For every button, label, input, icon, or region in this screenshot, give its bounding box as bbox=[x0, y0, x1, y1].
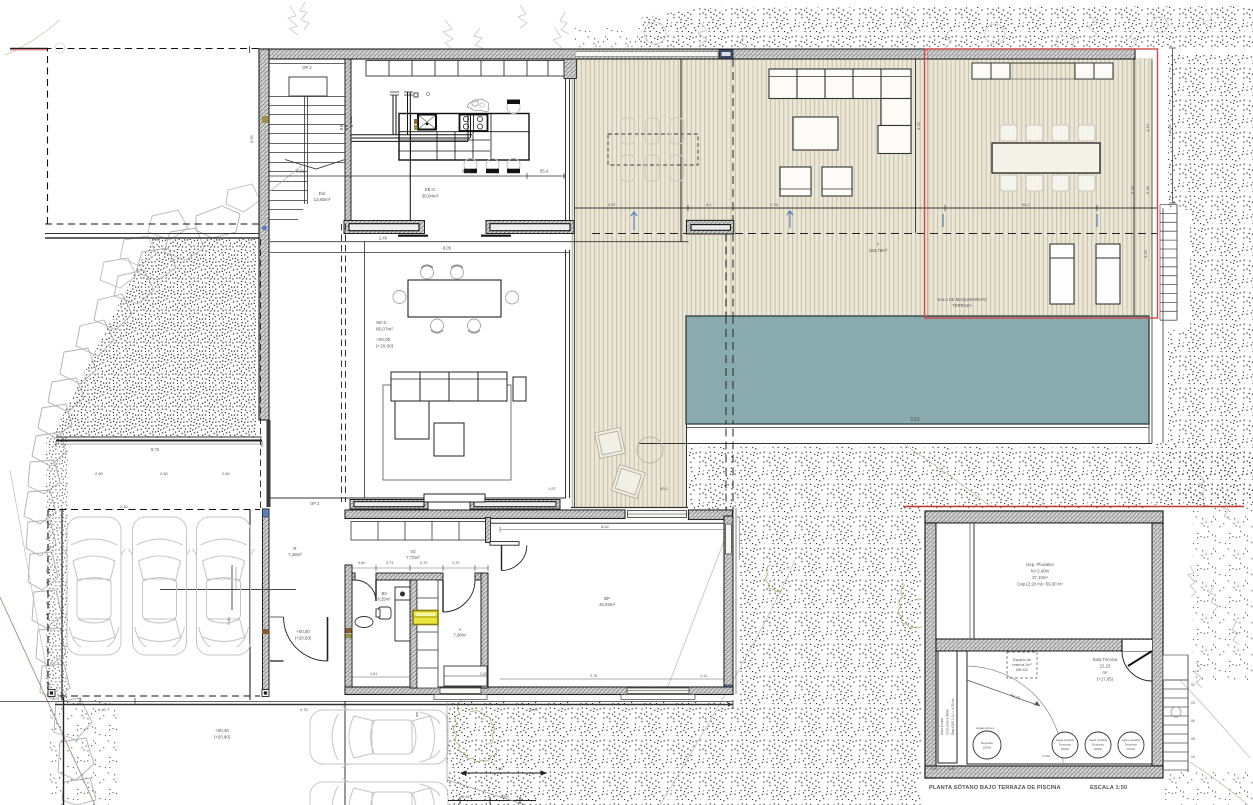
svg-text:2,76: 2,76 bbox=[770, 202, 779, 207]
svg-text:Depósito: Depósito bbox=[981, 741, 993, 745]
svg-text:9,72: 9,72 bbox=[151, 447, 160, 452]
svg-text:0,80: 0,80 bbox=[930, 767, 937, 771]
svg-text:6,25m²: 6,25m² bbox=[377, 597, 391, 602]
svg-text:2,60: 2,60 bbox=[222, 471, 231, 476]
svg-text:(+20,50): (+20,50) bbox=[295, 636, 312, 641]
svg-text:2,40: 2,40 bbox=[226, 616, 231, 625]
svg-text:0,97: 0,97 bbox=[608, 202, 617, 207]
svg-text:65,4: 65,4 bbox=[540, 169, 549, 174]
svg-text:Depósito: Depósito bbox=[1059, 743, 1071, 747]
svg-text:0,36: 0,36 bbox=[1145, 185, 1150, 194]
svg-text:Depósito: Depósito bbox=[1092, 743, 1104, 747]
svg-text:(+17,65): (+17,65) bbox=[1097, 677, 1114, 682]
svg-text:02: 02 bbox=[1191, 683, 1195, 687]
svg-text:2,40: 2,40 bbox=[379, 236, 388, 241]
svg-text:5,06: 5,06 bbox=[1167, 123, 1172, 132]
svg-text:4,26: 4,26 bbox=[1143, 249, 1148, 258]
svg-text:1000L: 1000L bbox=[983, 746, 992, 750]
svg-text:SE-C: SE-C bbox=[376, 320, 388, 325]
svg-text:PLANTA SÓTANO BAJO TERRAZA DE: PLANTA SÓTANO BAJO TERRAZA DE PISCINA bbox=[929, 783, 1061, 791]
svg-text:+00,00: +00,00 bbox=[376, 337, 391, 342]
svg-text:2,75: 2,75 bbox=[590, 674, 597, 678]
svg-text:Dis: Dis bbox=[319, 191, 326, 196]
svg-text:(+20,00): (+20,00) bbox=[376, 344, 394, 349]
svg-text:4,75: 4,75 bbox=[300, 707, 309, 712]
svg-text:10: 10 bbox=[1191, 755, 1195, 759]
svg-text:7,98m²: 7,98m² bbox=[453, 633, 467, 638]
svg-text:Cap.(2,20 m)= 59,30 m³: Cap.(2,20 m)= 59,30 m³ bbox=[1017, 582, 1063, 587]
svg-text:2,95: 2,95 bbox=[530, 707, 539, 712]
svg-text:Dep. Pluviales: Dep. Pluviales bbox=[1026, 562, 1053, 567]
svg-text:reserva 1m³: reserva 1m³ bbox=[1012, 663, 1032, 667]
svg-text:1,97: 1,97 bbox=[548, 486, 557, 491]
svg-text:B3: B3 bbox=[381, 591, 387, 596]
svg-text:22,23: 22,23 bbox=[1100, 664, 1111, 669]
svg-text:2,45: 2,45 bbox=[480, 672, 487, 676]
svg-text:3,25: 3,25 bbox=[916, 121, 921, 130]
svg-text:0,70: 0,70 bbox=[420, 561, 427, 565]
svg-text:7,28m²: 7,28m² bbox=[288, 552, 302, 557]
svg-text:1,11: 1,11 bbox=[700, 674, 707, 678]
svg-text:2,60: 2,60 bbox=[95, 471, 104, 476]
svg-text:Depósito: Depósito bbox=[1125, 743, 1137, 747]
svg-text:+00,00: +00,00 bbox=[296, 629, 310, 634]
svg-text:8,1: 8,1 bbox=[706, 202, 712, 207]
svg-text:9,61: 9,61 bbox=[910, 417, 920, 423]
svg-text:SE-C: SE-C bbox=[425, 187, 437, 192]
svg-text:4,13: 4,13 bbox=[1145, 123, 1150, 132]
svg-text:h=94: h=94 bbox=[1043, 754, 1050, 758]
svg-text:+00,40: +00,40 bbox=[215, 728, 229, 733]
svg-text:ESCALA 1:50: ESCALA 1:50 bbox=[1090, 785, 1127, 791]
svg-text:6,40: 6,40 bbox=[98, 707, 107, 712]
svg-text:13,65m²: 13,65m² bbox=[314, 197, 331, 202]
svg-text:85,07m²: 85,07m² bbox=[376, 327, 393, 332]
svg-text:A: A bbox=[459, 627, 462, 632]
svg-text:V2: V2 bbox=[410, 549, 416, 554]
svg-text:(+20,90): (+20,90) bbox=[214, 735, 231, 740]
svg-text:183,78m²: 183,78m² bbox=[869, 248, 888, 253]
svg-text:2,40: 2,40 bbox=[120, 504, 129, 509]
svg-text:65,5: 65,5 bbox=[462, 169, 471, 174]
svg-text:DB=I32: DB=I32 bbox=[1016, 668, 1028, 672]
svg-text:OP 2: OP 2 bbox=[302, 65, 312, 70]
svg-text:Dep.GLP 1,2 l = 4,35 m³: Dep.GLP 1,2 l = 4,35 m³ bbox=[951, 698, 955, 735]
svg-text:37,10m²: 37,10m² bbox=[1032, 575, 1048, 580]
svg-text:Sala Comb.: Sala Comb. bbox=[940, 717, 944, 735]
svg-text:T: T bbox=[877, 242, 880, 247]
svg-text:8,52: 8,52 bbox=[601, 524, 610, 529]
svg-text:BP: BP bbox=[604, 596, 610, 601]
svg-text:04: 04 bbox=[1191, 701, 1195, 705]
svg-text:96,2: 96,2 bbox=[1022, 202, 1031, 207]
svg-text:h)=2,40m: h)=2,40m bbox=[1031, 569, 1050, 574]
svg-text:R: R bbox=[293, 546, 296, 551]
svg-text:1000L: 1000L bbox=[1127, 747, 1136, 751]
svg-text:SALA DE MAQUINARIA/O: SALA DE MAQUINARIA/O bbox=[937, 297, 987, 302]
svg-text:7,73m²: 7,73m² bbox=[406, 555, 420, 560]
svg-text:0,41: 0,41 bbox=[462, 794, 471, 799]
svg-text:8,05: 8,05 bbox=[443, 246, 452, 251]
svg-text:TERRAZA: TERRAZA bbox=[952, 303, 972, 308]
svg-text:Aguas grises: Aguas grises bbox=[976, 726, 994, 730]
svg-text:7,50: 7,50 bbox=[495, 766, 504, 771]
svg-text:1000L: 1000L bbox=[1094, 747, 1103, 751]
svg-text:0,80: 0,80 bbox=[948, 767, 955, 771]
svg-text:0,36: 0,36 bbox=[1130, 185, 1135, 194]
svg-text:Agua potable: Agua potable bbox=[1089, 738, 1108, 742]
svg-text:45,92m²: 45,92m² bbox=[599, 602, 616, 607]
svg-text:OP 2: OP 2 bbox=[310, 501, 320, 506]
svg-text:1,70: 1,70 bbox=[452, 561, 459, 565]
svg-text:Espacio de: Espacio de bbox=[1013, 658, 1031, 662]
svg-text:h)=2,20m 3,96m²: h)=2,20m 3,96m² bbox=[946, 708, 950, 735]
svg-text:1000L: 1000L bbox=[1061, 747, 1070, 751]
svg-text:0,91: 0,91 bbox=[296, 169, 305, 174]
svg-text:06: 06 bbox=[1191, 719, 1195, 723]
svg-text:30,84m²: 30,84m² bbox=[422, 194, 439, 199]
svg-text:90,2: 90,2 bbox=[660, 486, 669, 491]
svg-text:0,60: 0,60 bbox=[358, 561, 365, 565]
svg-text:1,61: 1,61 bbox=[370, 672, 377, 676]
svg-text:0,73: 0,73 bbox=[386, 561, 393, 565]
svg-text:6,55: 6,55 bbox=[249, 134, 254, 143]
svg-text:Sala Técnica: Sala Técnica bbox=[1093, 657, 1118, 662]
svg-text:Agua potable: Agua potable bbox=[1122, 738, 1141, 742]
svg-text:2,60: 2,60 bbox=[160, 471, 169, 476]
svg-text:m²: m² bbox=[1102, 670, 1108, 675]
svg-text:08: 08 bbox=[1191, 737, 1195, 741]
svg-text:Agua potable: Agua potable bbox=[1056, 738, 1075, 742]
